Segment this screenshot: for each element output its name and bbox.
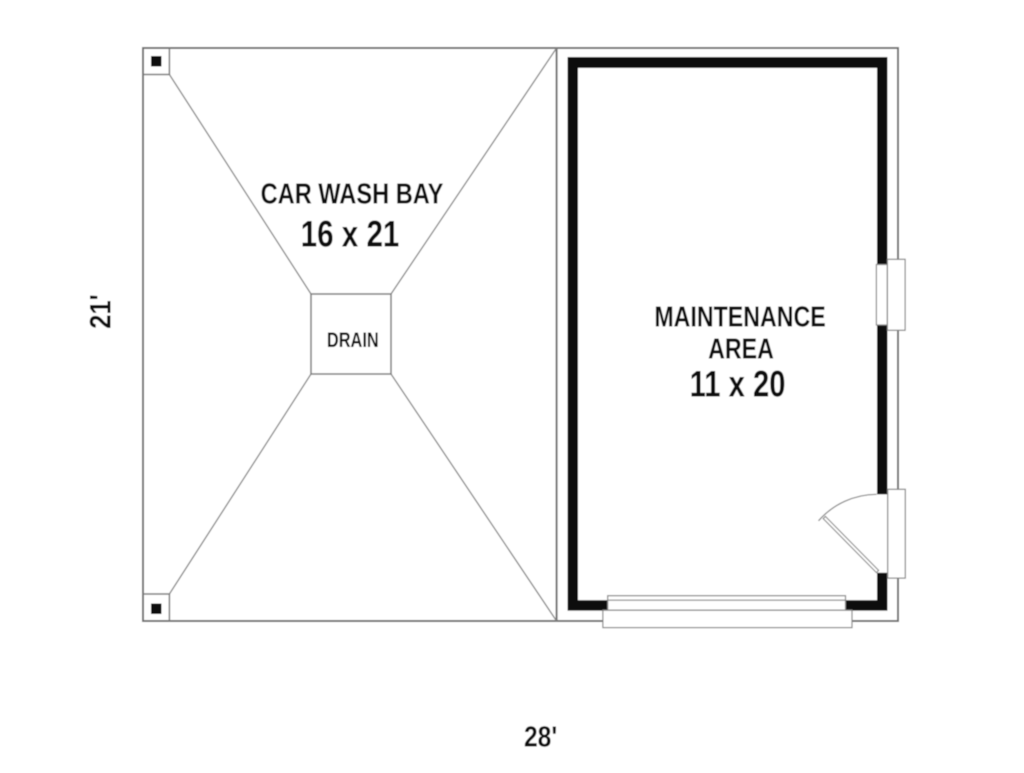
svg-text:AREA: AREA [708,332,774,365]
svg-text:21': 21' [84,294,117,328]
svg-text:DRAIN: DRAIN [327,328,379,351]
svg-text:16 x 21: 16 x 21 [301,215,400,256]
svg-text:11 x 20: 11 x 20 [690,364,786,405]
svg-text:CAR WASH BAY: CAR WASH BAY [261,177,444,210]
svg-text:28': 28' [524,720,557,752]
svg-text:MAINTENANCE: MAINTENANCE [654,300,825,333]
